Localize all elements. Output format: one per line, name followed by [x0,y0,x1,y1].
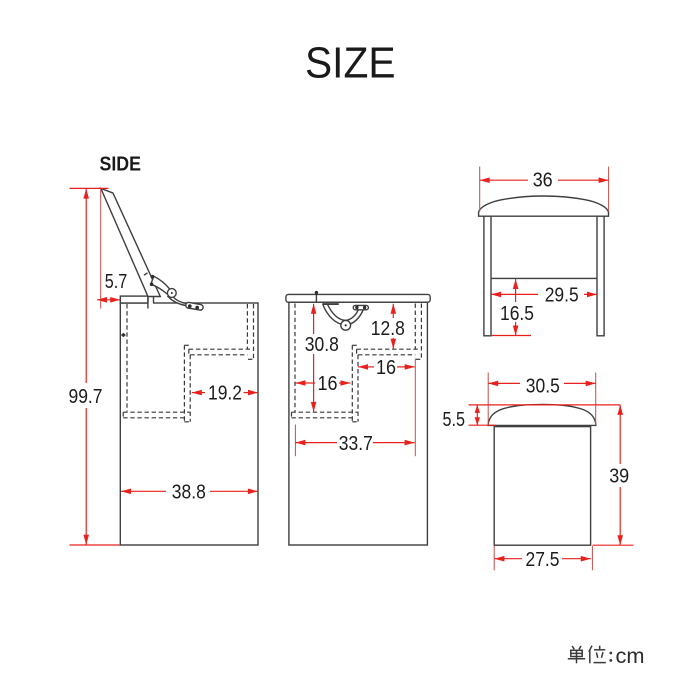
svg-text:38.8: 38.8 [172,481,206,503]
svg-text:36: 36 [533,170,553,192]
svg-text:5.5: 5.5 [443,409,466,431]
svg-text:19.2: 19.2 [208,383,242,405]
svg-text:SIZE: SIZE [305,39,396,88]
svg-text:27.5: 27.5 [526,549,560,571]
svg-text:33.7: 33.7 [339,433,373,455]
svg-text:12.8: 12.8 [371,318,405,340]
svg-text:29.5: 29.5 [545,285,579,307]
svg-text:30.5: 30.5 [526,376,560,398]
svg-text:SIDE: SIDE [100,154,142,176]
svg-text:99.7: 99.7 [69,386,103,408]
svg-text:16: 16 [376,357,396,379]
svg-text:16: 16 [318,373,338,395]
svg-text:30.8: 30.8 [305,334,339,356]
svg-text:39: 39 [609,466,629,488]
svg-text:cm: cm [616,645,645,668]
svg-text:16.5: 16.5 [500,303,534,325]
svg-text:5.7: 5.7 [105,271,128,293]
